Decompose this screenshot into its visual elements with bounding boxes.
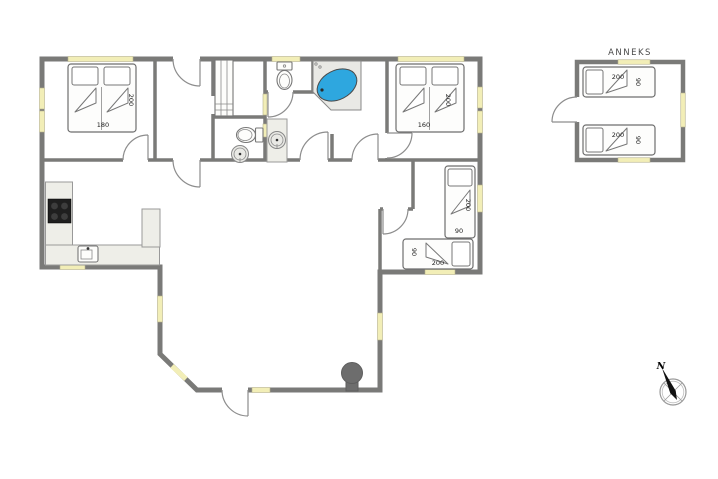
kitchen-peninsula (142, 209, 160, 247)
pillow (452, 242, 470, 266)
bed-length-label: 200 (612, 131, 624, 139)
pillow (586, 70, 603, 94)
anneks-bed-bottom: 200 90 (583, 125, 655, 155)
spa-drain (320, 88, 323, 91)
bed-length-label: 200 (432, 259, 444, 267)
north-label: N (656, 361, 666, 372)
toilet-room (232, 128, 264, 163)
wardrobe (215, 60, 233, 116)
floor-plan-page: 180 200 160 200 (0, 0, 718, 479)
toilet-top (277, 62, 292, 90)
pillow (448, 169, 472, 186)
anneks: ANNEKS 200 90 200 90 (552, 48, 685, 162)
bedroom-2: 160 200 (396, 64, 464, 132)
bed-length-label: 200 (127, 94, 135, 106)
single-bed-horizontal: 90 200 (403, 239, 473, 269)
single-bed-vertical: 200 90 (445, 166, 475, 238)
bed-length-label: 200 (612, 73, 624, 81)
anneks-bed-top: 200 90 (583, 67, 655, 97)
pillow (586, 128, 603, 152)
pillow (104, 67, 130, 85)
kitchen-sink (78, 246, 98, 262)
bed-width-label: 160 (418, 121, 430, 129)
double-bed-right: 160 200 (396, 64, 464, 132)
round-basin (232, 146, 249, 163)
bed-width-label: 180 (97, 121, 109, 129)
kitchen-counter-bottom (46, 245, 160, 265)
bed-width-label: 90 (410, 248, 418, 256)
anneks-label: ANNEKS (608, 48, 652, 58)
bed-width-label: 90 (634, 136, 642, 144)
bed-width-label: 90 (455, 227, 463, 235)
bathroom-block (215, 60, 362, 163)
wood-stove (342, 363, 363, 392)
bed-width-label: 90 (634, 78, 642, 86)
spa-bath (312, 61, 363, 110)
floor-plan-canvas: 180 200 160 200 (0, 0, 718, 479)
vanity-basin (267, 119, 287, 162)
bed-length-label: 200 (444, 94, 452, 106)
kitchen (46, 182, 161, 265)
pillow (72, 67, 98, 85)
living-room (342, 363, 363, 392)
double-bed-left: 180 200 (68, 64, 136, 132)
bedroom-1: 180 200 (68, 64, 136, 132)
pillow (400, 67, 426, 85)
compass-rose: N (656, 361, 686, 405)
cooktop (48, 199, 71, 223)
pillow (432, 67, 458, 85)
anneks-door-swing (552, 97, 577, 122)
bed-length-label: 200 (464, 199, 472, 211)
